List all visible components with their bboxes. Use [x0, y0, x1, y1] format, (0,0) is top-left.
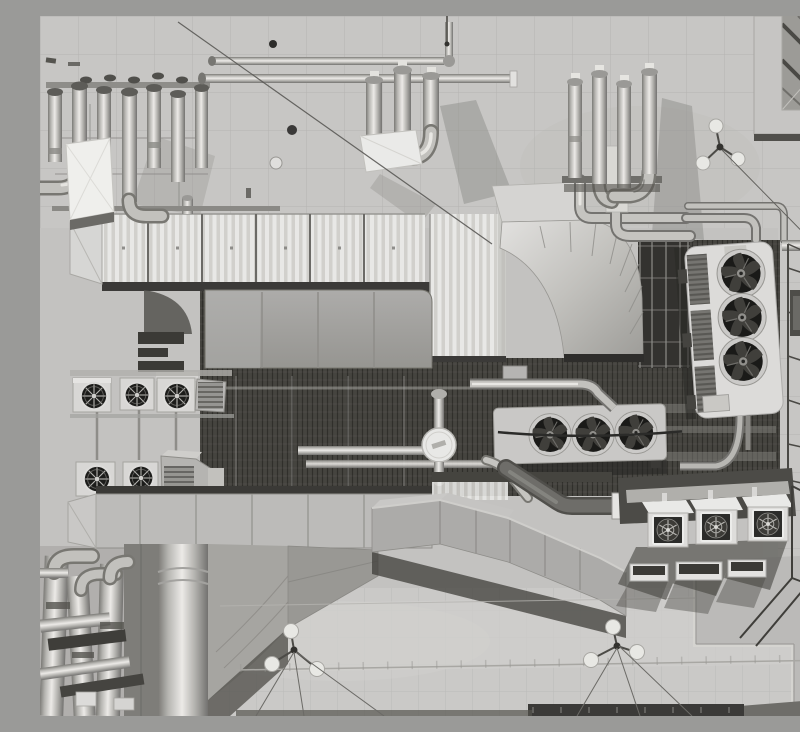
- vent-trays: [616, 560, 766, 614]
- intake-fan-icon: [80, 382, 109, 411]
- stack-cluster-center: [360, 61, 440, 172]
- intake-fan-icon: [124, 382, 151, 409]
- louver-panel: [198, 382, 223, 409]
- intake-fan-icon: [163, 382, 192, 411]
- roof-puck: [270, 157, 282, 169]
- stack-base-box: [360, 130, 422, 172]
- pulley-dot: [287, 125, 297, 135]
- cube-fan-grille-icon: [653, 516, 683, 544]
- corner-structure: [754, 16, 800, 141]
- corrugated-duct-leg: [430, 214, 506, 360]
- pulley-dot: [269, 40, 277, 48]
- aerial-rooftop-photo: Black-and-white aerial top-down photogra…: [40, 16, 800, 716]
- center-condenser-unit: [493, 403, 683, 478]
- cube-fan-grille-icon: [753, 510, 783, 538]
- cube-fan-grille-icon: [701, 513, 731, 541]
- photo-canvas: Black-and-white aerial top-down photogra…: [40, 16, 800, 716]
- right-condenser-unit: [674, 241, 784, 419]
